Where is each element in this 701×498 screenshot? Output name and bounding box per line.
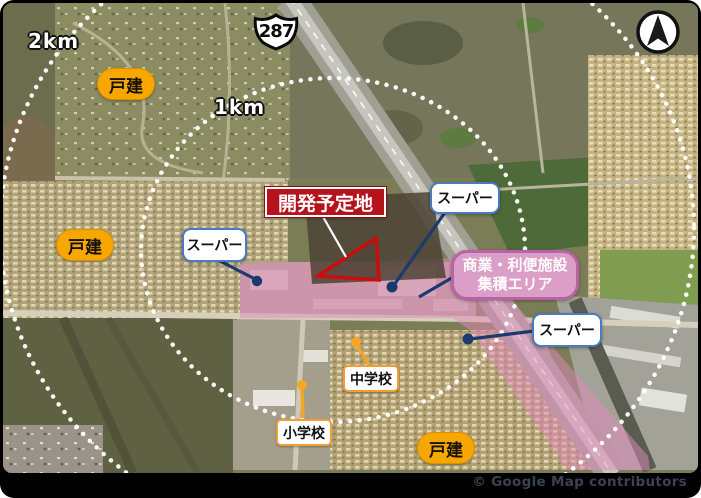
route-number: 287 (252, 21, 300, 42)
callout-line-elementary (302, 389, 303, 418)
development-site-label: 開発予定地 (265, 187, 386, 217)
map-figure-frame: 287 2km 1km 戸建 戸建 戸建 スーパー スーパー スーパー 開発予定… (0, 0, 701, 498)
callout-dot-supermarket-1 (252, 276, 262, 286)
north-arrow-icon (635, 9, 681, 55)
distance-label-1km: 1km (214, 95, 265, 119)
north-compass (635, 9, 681, 55)
school-label-elementary: 小学校 (276, 419, 332, 446)
route-shield-287: 287 (252, 13, 300, 51)
housing-label-3: 戸建 (417, 432, 475, 464)
callout-dot-supermarket-2 (387, 282, 398, 293)
commercial-area-label-line1: 商業・利便施設 (462, 256, 567, 276)
callout-dot-junior-high (351, 337, 361, 347)
map-copyright: © Google Map contributors (472, 474, 687, 490)
callout-dot-supermarket-3 (463, 334, 474, 345)
school-label-junior-high: 中学校 (343, 365, 399, 392)
housing-label-1: 戸建 (97, 68, 155, 100)
housing-label-2: 戸建 (56, 229, 114, 261)
commercial-area-label: 商業・利便施設 集積エリア (451, 250, 579, 300)
distance-label-2km: 2km (28, 29, 79, 53)
callout-dot-elementary (297, 380, 307, 390)
supermarket-label-1: スーパー (182, 228, 247, 262)
satellite-map: 287 2km 1km 戸建 戸建 戸建 スーパー スーパー スーパー 開発予定… (3, 3, 698, 473)
commercial-area-label-line2: 集積エリア (477, 275, 552, 295)
supermarket-label-3: スーパー (532, 313, 602, 347)
supermarket-label-2: スーパー (430, 182, 500, 214)
